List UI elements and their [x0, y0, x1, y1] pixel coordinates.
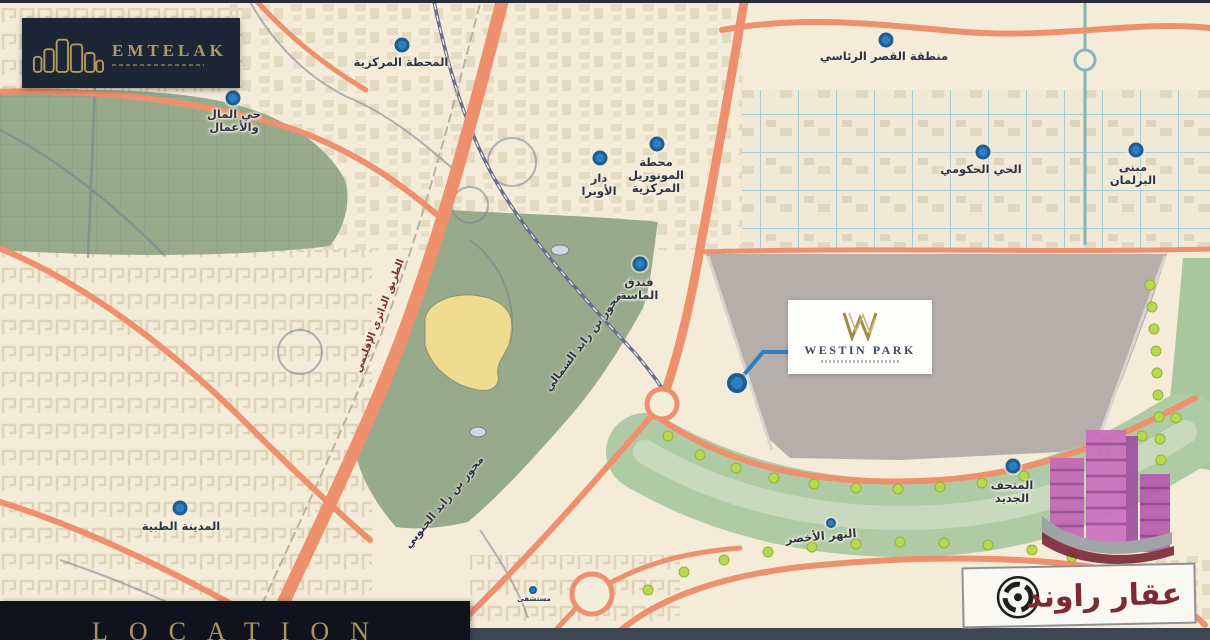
project-name-card: WESTIN PARK	[788, 300, 932, 374]
location-banner-text: LOCATION	[92, 610, 470, 640]
project-subtitle-line	[821, 360, 899, 363]
westin-park-monogram-icon	[840, 311, 880, 341]
developer-logo: EMTELAK	[22, 18, 240, 88]
agency-buildings-watermark-icon	[1042, 420, 1178, 565]
map-canvas	[0, 0, 1210, 640]
top-edge-bar	[0, 0, 1210, 3]
developer-logo-text: EMTELAK	[112, 41, 227, 61]
developer-tagline-line	[112, 64, 204, 66]
agency-watermark-badge: عقار راوند	[961, 563, 1196, 629]
project-location-marker	[727, 373, 747, 393]
project-name: WESTIN PARK	[804, 343, 916, 358]
emtelak-buildings-icon	[32, 30, 104, 76]
government-district-grid	[742, 90, 1210, 248]
location-map-slide: المحطة المركزيةحي المال والأعمالدار الأو…	[0, 0, 1210, 640]
agency-watermark-text: عقار راوند	[982, 573, 1183, 621]
location-banner: LOCATION	[0, 601, 470, 640]
